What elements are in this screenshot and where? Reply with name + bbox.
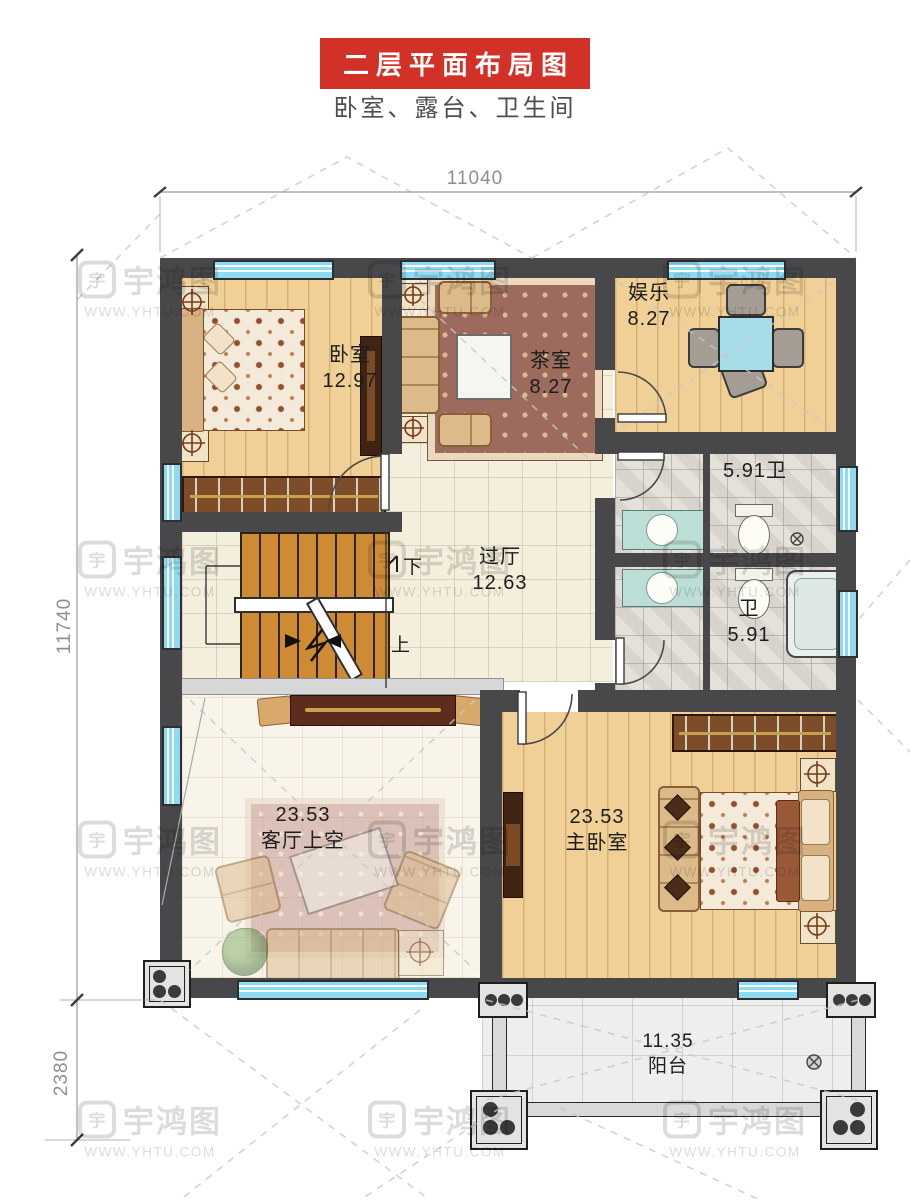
yhtu-logo-icon: 宇	[78, 1100, 116, 1138]
wall-living-master	[480, 690, 502, 998]
wall-bath-divider	[615, 553, 856, 567]
master-wardrobe	[672, 714, 838, 752]
balcony-post-top-right	[826, 982, 876, 1018]
dimension-left-main: 11740	[54, 591, 76, 661]
tea-room-table	[456, 334, 512, 400]
wall-bedroom-right	[382, 258, 402, 454]
bathtub-inner	[794, 578, 840, 650]
wall-entertainment-bath	[595, 432, 856, 454]
label-entertainment: 娱乐8.27	[628, 280, 671, 332]
balcony-rail-left	[492, 1010, 507, 1096]
dimension-left-balcony: 2380	[51, 1041, 73, 1105]
hall-display-cabinet	[290, 695, 456, 726]
floorplan-page: { "title": "二层平面布局图", "subtitle": "卧室、露台…	[0, 0, 910, 1200]
label-balcony: 11.35阳台	[642, 1030, 693, 1079]
bath1-basin	[646, 514, 678, 546]
window-living-bottom	[237, 980, 429, 1000]
master-pillow	[801, 799, 830, 845]
tea-room-armchair-top	[438, 281, 492, 314]
wall-hall-bath	[595, 498, 615, 640]
void-edge-beam	[160, 678, 504, 695]
balcony-post-bottom-right	[820, 1090, 878, 1150]
master-tv-cabinet	[503, 792, 523, 898]
window-left-2	[162, 556, 182, 650]
balcony-post-bottom-left	[470, 1090, 528, 1150]
wall-master-top-right	[578, 690, 856, 712]
mahjong-chair-right	[772, 328, 804, 368]
yhtu-logo-icon: 宇	[78, 540, 116, 578]
bath2-basin	[646, 572, 678, 604]
balcony-rail-bottom	[522, 1102, 824, 1117]
mahjong-chair-left	[688, 328, 720, 368]
bath2-partition	[703, 567, 710, 690]
balcony-rail-right	[851, 1010, 866, 1096]
dimension-top: 11040	[447, 168, 503, 190]
master-pillow	[801, 855, 830, 901]
master-nightstand-top	[800, 758, 836, 792]
window-entertainment-top	[667, 260, 786, 280]
cabinet-handle	[305, 708, 441, 712]
window-left-3	[162, 726, 182, 806]
yhtu-logo-icon: 宇	[78, 260, 116, 298]
label-bath2: 卫5.91	[728, 596, 771, 648]
corner-post-house-left	[143, 960, 191, 1008]
living-side-table	[398, 930, 444, 976]
stair-up-label: 上	[391, 630, 410, 657]
window-master-bottom	[737, 980, 799, 1000]
label-living-void: 23.53客厅上空	[261, 802, 345, 854]
window-bedroom-top	[213, 260, 334, 280]
master-bed-throw	[776, 800, 800, 902]
hall-cabinet-wing-left	[257, 695, 294, 726]
wall-tea-entertainment	[595, 258, 615, 370]
balcony-post-top-left	[478, 982, 528, 1018]
bath1-toilet	[738, 515, 770, 555]
label-master: 23.53主卧室	[566, 804, 629, 856]
label-tea-room: 茶室8.27	[530, 348, 573, 400]
watermark: 宇宇鸿图 WWW.YHTU.COM	[78, 1097, 222, 1160]
label-bath1: 5.91卫	[723, 458, 787, 484]
window-tea-top	[400, 260, 496, 280]
window-bath2-right	[838, 590, 858, 658]
mahjong-table	[718, 316, 774, 372]
page-title: 二层平面布局图	[320, 38, 590, 89]
stair-down-label: 下	[403, 552, 422, 579]
label-hall: 过厅12.63	[472, 544, 527, 596]
wall-bedroom-bottom	[160, 512, 402, 532]
window-left-1	[162, 463, 182, 522]
mahjong-chair-top	[726, 284, 766, 316]
bath1-partition	[703, 454, 710, 553]
label-bedroom: 卧室12.97	[322, 342, 377, 394]
yhtu-logo-icon: 宇	[78, 820, 116, 858]
bedroom-wardrobe	[182, 476, 386, 516]
yhtu-logo-icon: 宇	[368, 1100, 406, 1138]
tea-room-armchair-bottom	[438, 413, 492, 447]
tea-room-side-table-bottom	[400, 416, 428, 443]
page-subtitle: 卧室、露台、卫生间	[334, 88, 577, 123]
tea-room-side-table-top	[400, 283, 428, 310]
living-sofa	[266, 928, 400, 982]
window-bath1-right	[838, 466, 858, 532]
master-nightstand-bottom	[800, 910, 836, 944]
